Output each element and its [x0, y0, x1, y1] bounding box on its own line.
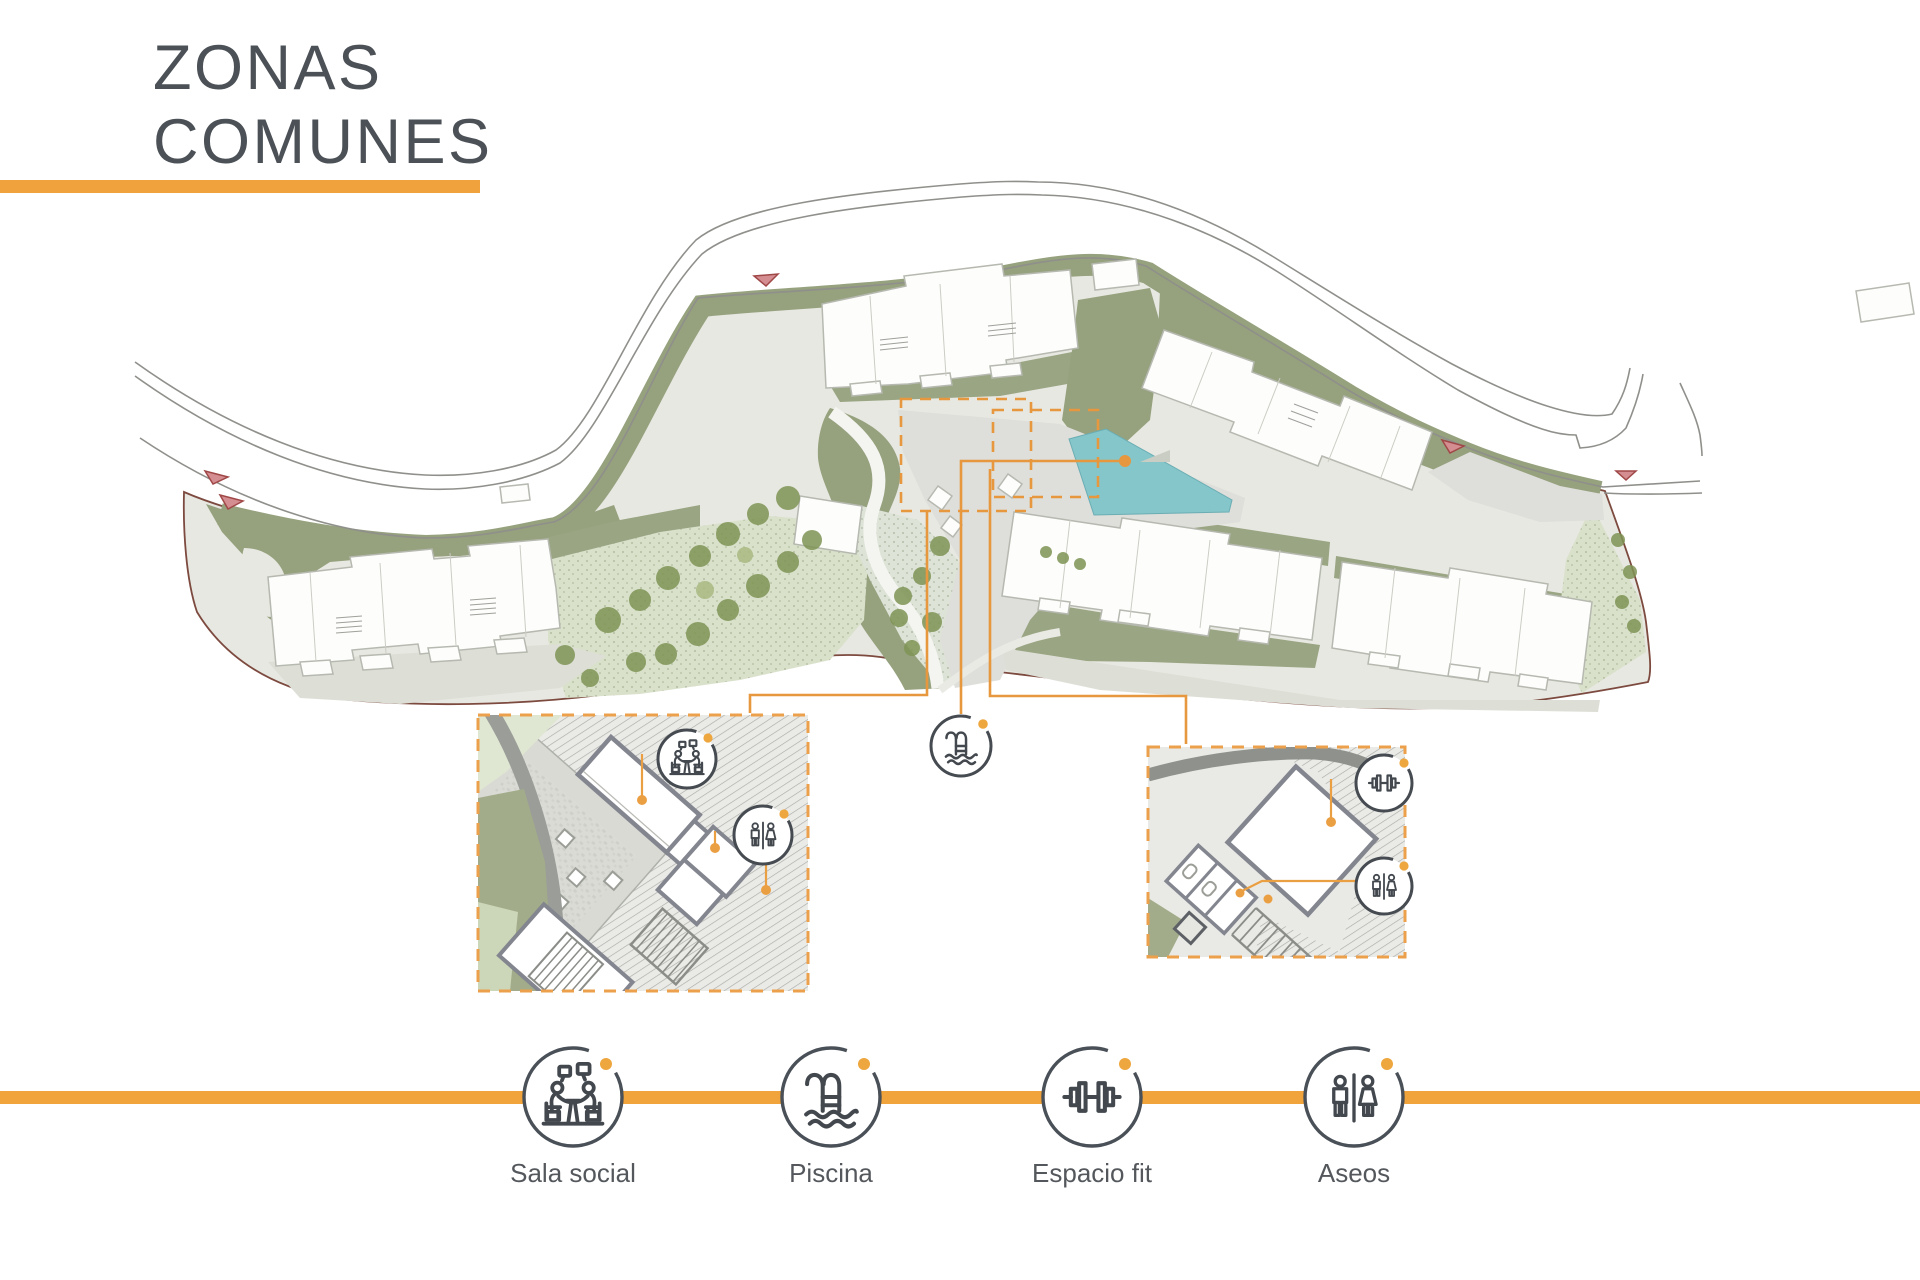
svg-text:COMUNES: COMUNES [153, 107, 493, 177]
svg-text:ZONAS: ZONAS [153, 33, 383, 103]
svg-text:Aseos: Aseos [1318, 1158, 1390, 1188]
svg-text:Espacio fit: Espacio fit [1032, 1158, 1153, 1188]
svg-text:Sala social: Sala social [510, 1158, 636, 1188]
svg-text:Piscina: Piscina [789, 1158, 873, 1188]
